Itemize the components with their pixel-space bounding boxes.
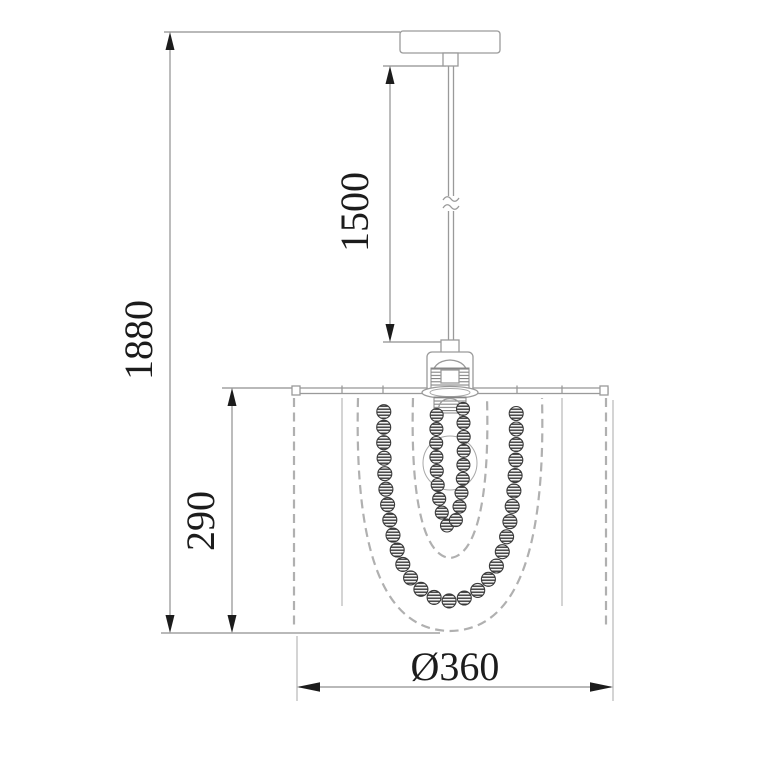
- crystal-bead: [404, 571, 418, 585]
- crystal-bead: [509, 438, 523, 452]
- crystal-bead: [377, 436, 391, 450]
- crystal-bead: [453, 500, 466, 513]
- arrowhead-down-icon: [228, 615, 237, 633]
- crystal-bead: [427, 590, 441, 604]
- dimension-label-suspension-length: 1500: [332, 172, 377, 252]
- crystal-bead: [457, 402, 470, 415]
- bead-strand-outer: [377, 404, 524, 608]
- crystal-bead: [509, 453, 523, 467]
- crystal-bead: [489, 559, 503, 573]
- crystal-bead: [390, 543, 404, 557]
- suspension-cord: [441, 66, 459, 353]
- canopy-connector: [443, 53, 458, 66]
- crystal-bead: [381, 498, 395, 512]
- arrowhead-up-icon: [386, 66, 395, 84]
- crystal-bead: [430, 451, 443, 464]
- arrowhead-down-icon: [166, 615, 175, 633]
- crystal-bead: [457, 416, 470, 429]
- crystal-bead: [455, 486, 468, 499]
- crystal-bead: [430, 465, 443, 478]
- dimension-overall-height: 1880: [116, 32, 400, 633]
- technical-drawing-canvas: 1880 1500 290 Ø360: [0, 0, 768, 768]
- crystal-bead: [508, 469, 522, 483]
- crystal-bead: [509, 407, 523, 421]
- crystal-bead: [378, 467, 392, 481]
- crystal-bead: [500, 530, 514, 544]
- arrowhead-down-icon: [386, 324, 395, 342]
- dimension-shade-height: 290: [178, 388, 293, 633]
- lamp-socket: [422, 352, 478, 413]
- crystal-bead: [396, 557, 410, 571]
- crystal-bead: [471, 583, 485, 597]
- crystal-bead: [377, 420, 391, 434]
- crystal-bead: [383, 513, 397, 527]
- crystal-bead: [433, 492, 446, 505]
- pendant-lamp-drawing: 1880 1500 290 Ø360: [0, 0, 768, 768]
- crystal-bead: [457, 458, 470, 471]
- crystal-bead: [503, 515, 517, 529]
- crystal-bead: [507, 484, 521, 498]
- crystal-bead: [435, 506, 448, 519]
- crystal-bead: [430, 423, 443, 436]
- crystal-bead: [481, 572, 495, 586]
- socket-window: [441, 370, 459, 383]
- arrowhead-up-icon: [166, 32, 175, 50]
- plate-end-cap-left: [292, 386, 300, 395]
- crystal-bead: [430, 409, 443, 422]
- crystal-bead: [449, 514, 462, 527]
- cord-break-icon: [443, 205, 459, 210]
- ceiling-canopy: [400, 31, 500, 66]
- cord-grip: [441, 340, 459, 353]
- arrowhead-right-icon: [590, 682, 613, 691]
- dimension-label-shade-diameter: Ø360: [411, 644, 500, 689]
- dimension-shade-diameter: Ø360: [297, 400, 613, 701]
- plate-end-cap-right: [600, 386, 608, 395]
- crystal-bead: [457, 591, 471, 605]
- crystal-bead: [457, 430, 470, 443]
- crystal-bead: [431, 479, 444, 492]
- crystal-bead: [379, 482, 393, 496]
- crystal-bead: [456, 472, 469, 485]
- arrowhead-left-icon: [297, 682, 320, 691]
- hidden-strand-inner: [413, 398, 488, 558]
- dimension-label-overall-height: 1880: [116, 300, 161, 380]
- cord-break-icon: [443, 197, 459, 202]
- crystal-bead: [505, 499, 519, 513]
- crystal-bead: [377, 405, 391, 419]
- dimension-label-shade-height: 290: [178, 491, 223, 551]
- crystal-bead: [442, 594, 456, 608]
- dimension-suspension-length: 1500: [332, 66, 446, 342]
- arrowhead-up-icon: [228, 388, 237, 406]
- crystal-bead: [386, 528, 400, 542]
- crystal-bead: [457, 444, 470, 457]
- canopy-plate: [400, 31, 500, 53]
- crystal-bead: [414, 582, 428, 596]
- crystal-bead: [430, 437, 443, 450]
- bead-strand-inner: [430, 402, 471, 532]
- crystal-bead: [495, 545, 509, 559]
- crystal-bead: [509, 422, 523, 436]
- crystal-bead: [377, 451, 391, 465]
